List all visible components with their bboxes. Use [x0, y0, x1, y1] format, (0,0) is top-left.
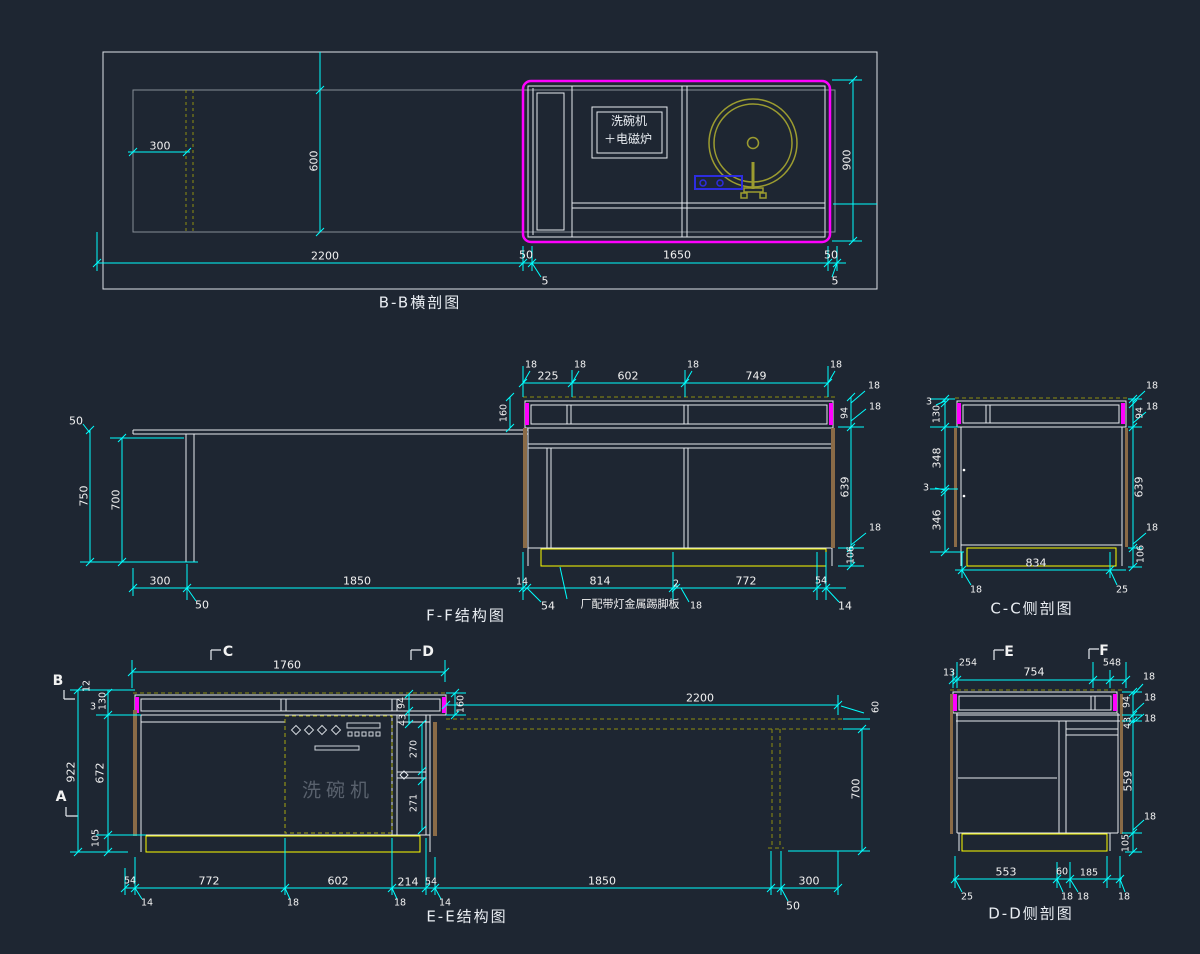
dd-structure — [953, 692, 1120, 851]
dim-dd-548: 548 — [1103, 658, 1121, 668]
dim-ff-54-a: 54 — [541, 601, 555, 612]
dim-cc-346: 346 — [932, 510, 943, 531]
ee-dishwasher-controls — [292, 723, 381, 750]
dd-plinth — [962, 834, 1107, 851]
ff-plinth-callout: 厂配带灯金属踢脚板 — [581, 599, 680, 610]
dim-ff-14-b: 14 — [838, 601, 852, 612]
dim-ee-270: 270 — [409, 740, 419, 758]
dd-view-title: D-D侧剖图 — [988, 907, 1074, 922]
dim-ff-50-top: 50 — [69, 416, 83, 427]
ee-dishwasher-label: 洗碗机 — [302, 782, 374, 801]
dim-ff-18-g: 18 — [869, 523, 881, 533]
dim-dd-754: 754 — [1024, 667, 1045, 678]
ee-plinth — [146, 836, 420, 852]
dim-ee-18-a: 18 — [287, 898, 299, 908]
dim-bb-1650: 1650 — [663, 250, 691, 261]
dd-gable-right — [1113, 694, 1117, 711]
dim-ff-18-h: 18 — [690, 601, 702, 611]
ee-panel-right — [433, 722, 437, 836]
dim-ee-672: 672 — [95, 763, 106, 784]
dim-dd-18-g: 18 — [1118, 892, 1130, 902]
drawing-canvas: 300 600 900 2200 50 1650 50 5 5 洗碗机 ＋电磁炉… — [0, 0, 1200, 954]
dim-ee-1760: 1760 — [273, 660, 301, 671]
section-marker-f: F — [1099, 644, 1109, 658]
dim-cc-18-b: 18 — [1146, 402, 1158, 412]
dim-dd-553: 553 — [996, 867, 1017, 878]
dim-ff-106: 106 — [846, 546, 856, 564]
dim-cc-3-mid: 3 — [923, 483, 929, 493]
dim-ee-50: 50 — [786, 901, 800, 912]
dim-ff-772: 772 — [736, 576, 757, 587]
dim-ee-14-a: 14 — [141, 898, 153, 908]
dim-ff-14-a: 14 — [516, 577, 528, 587]
dim-ff-749: 749 — [746, 371, 767, 382]
dim-cc-18-a: 18 — [1146, 381, 1158, 391]
dim-cc-18-d: 18 — [970, 585, 982, 595]
dim-ee-602: 602 — [328, 876, 349, 887]
dim-bb-5-right: 5 — [832, 276, 839, 287]
dim-dd-25: 25 — [961, 892, 973, 902]
dim-dd-60: 60 — [1056, 867, 1068, 877]
dim-ff-18-f: 18 — [869, 402, 881, 412]
dim-ff-54-b: 54 — [815, 576, 827, 586]
dd-gable-left — [953, 694, 957, 711]
dim-ff-700: 700 — [111, 490, 122, 511]
dim-bb-50-right: 50 — [824, 250, 838, 261]
dim-bb-300: 300 — [150, 141, 171, 152]
ff-gable-left — [525, 403, 529, 425]
bb-appliance-label-line2: ＋电磁炉 — [604, 133, 652, 145]
dim-dd-18-b: 18 — [1144, 693, 1156, 703]
ee-view-title: E-E结构图 — [426, 910, 507, 925]
dim-ee-105: 105 — [91, 829, 101, 847]
dim-bb-2200: 2200 — [311, 251, 339, 262]
cc-gable-right — [1121, 403, 1125, 424]
ff-view-title: F-F结构图 — [426, 609, 506, 624]
dim-bb-5-left: 5 — [542, 276, 549, 287]
dim-ee-300: 300 — [799, 876, 820, 887]
section-marker-d: D — [422, 645, 434, 659]
dim-ee-54-b: 54 — [425, 877, 437, 887]
dim-dd-43: 43 — [1123, 717, 1133, 729]
dim-ff-2: 2 — [673, 579, 679, 589]
dim-bb-600: 600 — [309, 151, 320, 172]
dim-ff-18-c: 18 — [687, 360, 699, 370]
dim-ee-214: 214 — [398, 877, 419, 888]
dim-ee-54-a: 54 — [124, 876, 136, 886]
ff-structure — [133, 401, 833, 566]
ee-view-linework — [64, 650, 870, 901]
linework-layer — [0, 0, 1200, 954]
dim-cc-25: 25 — [1116, 585, 1128, 595]
dim-ff-18-b: 18 — [574, 360, 586, 370]
dim-ff-160: 160 — [499, 404, 509, 422]
dim-bb-900: 900 — [842, 150, 853, 171]
dim-cc-639: 639 — [1134, 477, 1145, 498]
dim-cc-106: 106 — [1136, 545, 1146, 563]
bb-appliance-label-line1: 洗碗机 — [611, 115, 647, 127]
dim-dd-105: 105 — [1121, 834, 1131, 852]
cc-view-title: C-C侧剖图 — [990, 602, 1073, 617]
dim-ee-922: 922 — [66, 762, 77, 783]
dim-dd-94: 94 — [1122, 696, 1132, 708]
cc-panel-left — [954, 428, 957, 547]
section-marker-e: E — [1004, 645, 1014, 659]
dim-ff-94: 94 — [840, 407, 850, 419]
dim-dd-18-d: 18 — [1144, 812, 1156, 822]
bb-border — [103, 52, 877, 289]
dim-ff-50-leg: 50 — [195, 600, 209, 611]
dim-ee-160: 160 — [456, 695, 466, 713]
cc-panel-right — [1125, 428, 1128, 547]
dim-dd-18-e: 18 — [1061, 892, 1073, 902]
dim-ee-130: 130 — [98, 692, 108, 710]
ff-plinth — [541, 549, 826, 566]
dim-ff-18-d: 18 — [830, 360, 842, 370]
dim-dd-18-c: 18 — [1144, 714, 1156, 724]
dim-dd-13: 13 — [943, 668, 955, 678]
dim-ff-300: 300 — [150, 576, 171, 587]
dim-ee-43: 43 — [398, 714, 408, 726]
dim-ee-14-b: 14 — [439, 898, 451, 908]
dim-ff-814: 814 — [590, 576, 611, 587]
ee-dimensions — [70, 660, 870, 901]
dim-ff-18-a: 18 — [525, 360, 537, 370]
dim-ee-772: 772 — [199, 876, 220, 887]
bb-sink-burner — [709, 99, 797, 198]
dim-ff-750: 750 — [79, 486, 90, 507]
dim-ee-3: 3 — [90, 702, 96, 712]
dim-cc-94: 94 — [1135, 407, 1145, 419]
dim-dd-185: 185 — [1080, 868, 1098, 878]
dim-ee-94: 94 — [397, 697, 407, 709]
section-marker-a: A — [56, 790, 67, 804]
dim-ff-639: 639 — [840, 477, 851, 498]
dd-view-linework — [949, 649, 1144, 892]
ff-view-linework — [80, 366, 866, 602]
dim-cc-834: 834 — [1026, 558, 1047, 569]
dim-cc-18-c: 18 — [1146, 523, 1158, 533]
dim-ee-12: 12 — [82, 680, 92, 692]
dim-ff-602: 602 — [618, 371, 639, 382]
dim-ee-2200: 2200 — [686, 693, 714, 704]
bb-view-linework — [93, 52, 877, 289]
bb-hidden-lines — [186, 90, 193, 232]
ff-gable-right — [829, 403, 833, 425]
dim-dd-559: 559 — [1123, 771, 1134, 792]
dim-cc-130: 130 — [932, 405, 942, 423]
ee-hidden-lines — [133, 693, 843, 848]
dim-dd-18-f: 18 — [1077, 892, 1089, 902]
dd-panel-left — [950, 694, 953, 834]
dim-ee-1850: 1850 — [588, 876, 616, 887]
section-marker-c: C — [223, 645, 233, 659]
ee-panel-left — [133, 710, 137, 836]
section-marker-b: B — [53, 674, 64, 688]
dim-ff-1850: 1850 — [343, 576, 371, 587]
dim-bb-50-left: 50 — [519, 250, 533, 261]
cc-gable-left — [957, 403, 961, 424]
dim-ee-60: 60 — [871, 701, 881, 713]
dim-ff-225: 225 — [538, 371, 559, 382]
dim-dd-254: 254 — [959, 658, 977, 668]
ff-panel-right — [831, 428, 835, 548]
dim-ee-18-b: 18 — [394, 898, 406, 908]
dim-ee-700: 700 — [851, 779, 862, 800]
dim-cc-348: 348 — [932, 448, 943, 469]
dim-ff-18-e: 18 — [868, 381, 880, 391]
ff-panel-left — [523, 428, 527, 548]
dim-dd-18-a: 18 — [1143, 672, 1155, 682]
bb-cabinet-highlight — [523, 81, 830, 242]
dim-ee-271: 271 — [409, 794, 419, 812]
bb-view-title: B-B横剖图 — [379, 296, 461, 311]
cc-structure — [957, 401, 1126, 566]
